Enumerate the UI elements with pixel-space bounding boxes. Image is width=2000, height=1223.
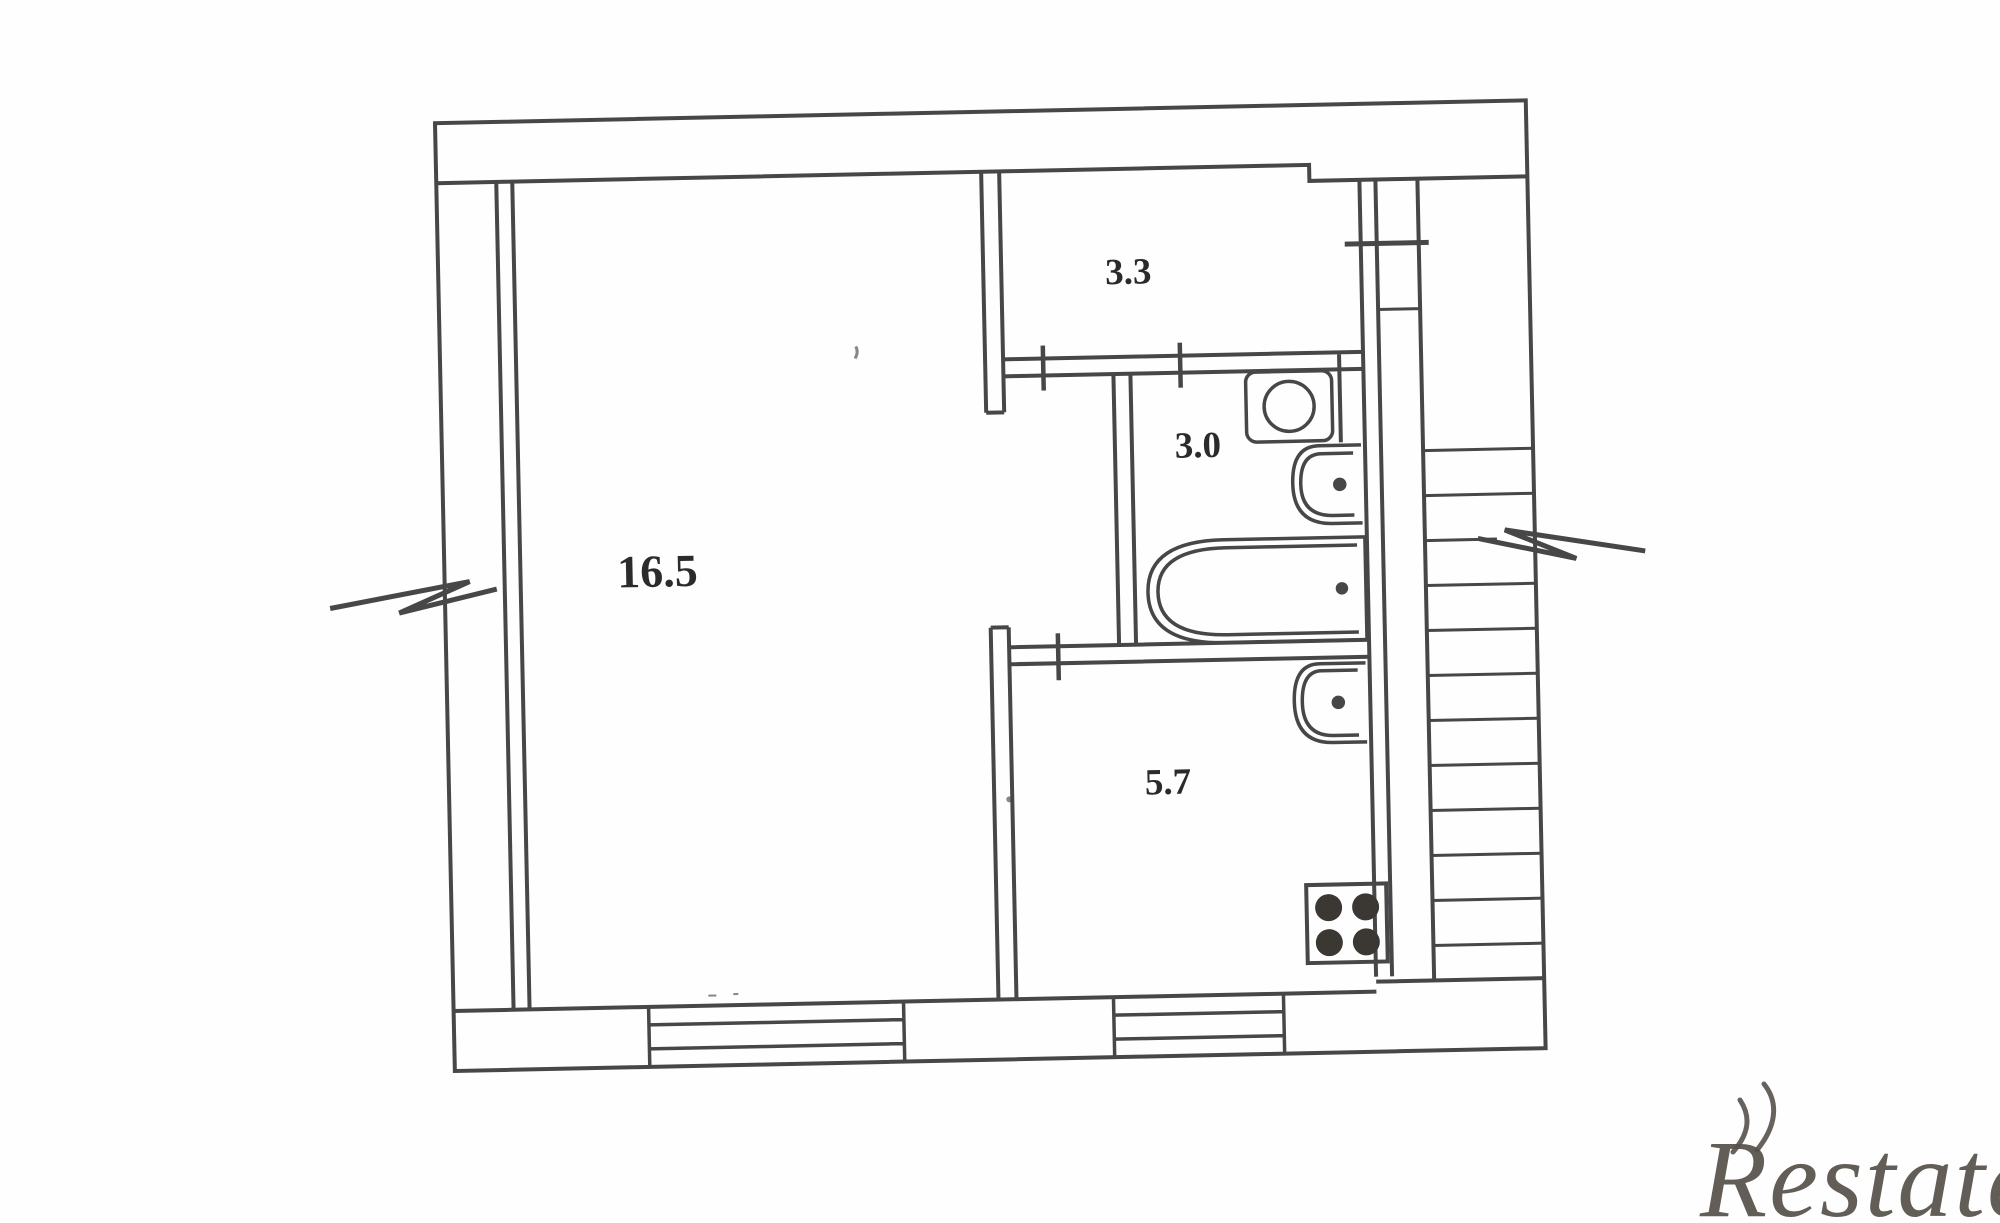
window-kitchen — [1113, 994, 1284, 1058]
kitchen-sink-symbol — [1294, 663, 1368, 743]
bathtub-symbol — [1147, 537, 1367, 645]
scanned-floor-plan-page: 16.5 3.3 3.0 5.7 Restate — [0, 0, 2000, 1223]
watermark-text: Restate — [1699, 1118, 2000, 1223]
toilet-symbol — [1245, 370, 1332, 442]
window-living-room — [649, 1002, 905, 1067]
room-area-label-kitchen: 5.7 — [1144, 762, 1191, 804]
floor-plan-drawing: 16.5 3.3 3.0 5.7 Restate — [0, 0, 2000, 1223]
room-area-label-living-room: 16.5 — [617, 545, 699, 598]
room-area-labels: 16.5 3.3 3.0 5.7 — [611, 250, 1229, 815]
scan-specks — [695, 343, 1016, 995]
room-area-label-hallway: 3.3 — [1105, 251, 1152, 293]
staircase-symbol — [1423, 448, 1543, 945]
watermark: Restate — [1699, 1084, 2000, 1223]
wall-break-mark-right — [1478, 527, 1646, 560]
plan-group: 16.5 3.3 3.0 5.7 — [320, 98, 1656, 1073]
room-area-label-bathroom: 3.0 — [1174, 425, 1221, 467]
washbasin-symbol — [1292, 445, 1363, 524]
stove-burners — [1315, 893, 1380, 956]
wall-break-mark-left — [330, 581, 498, 614]
